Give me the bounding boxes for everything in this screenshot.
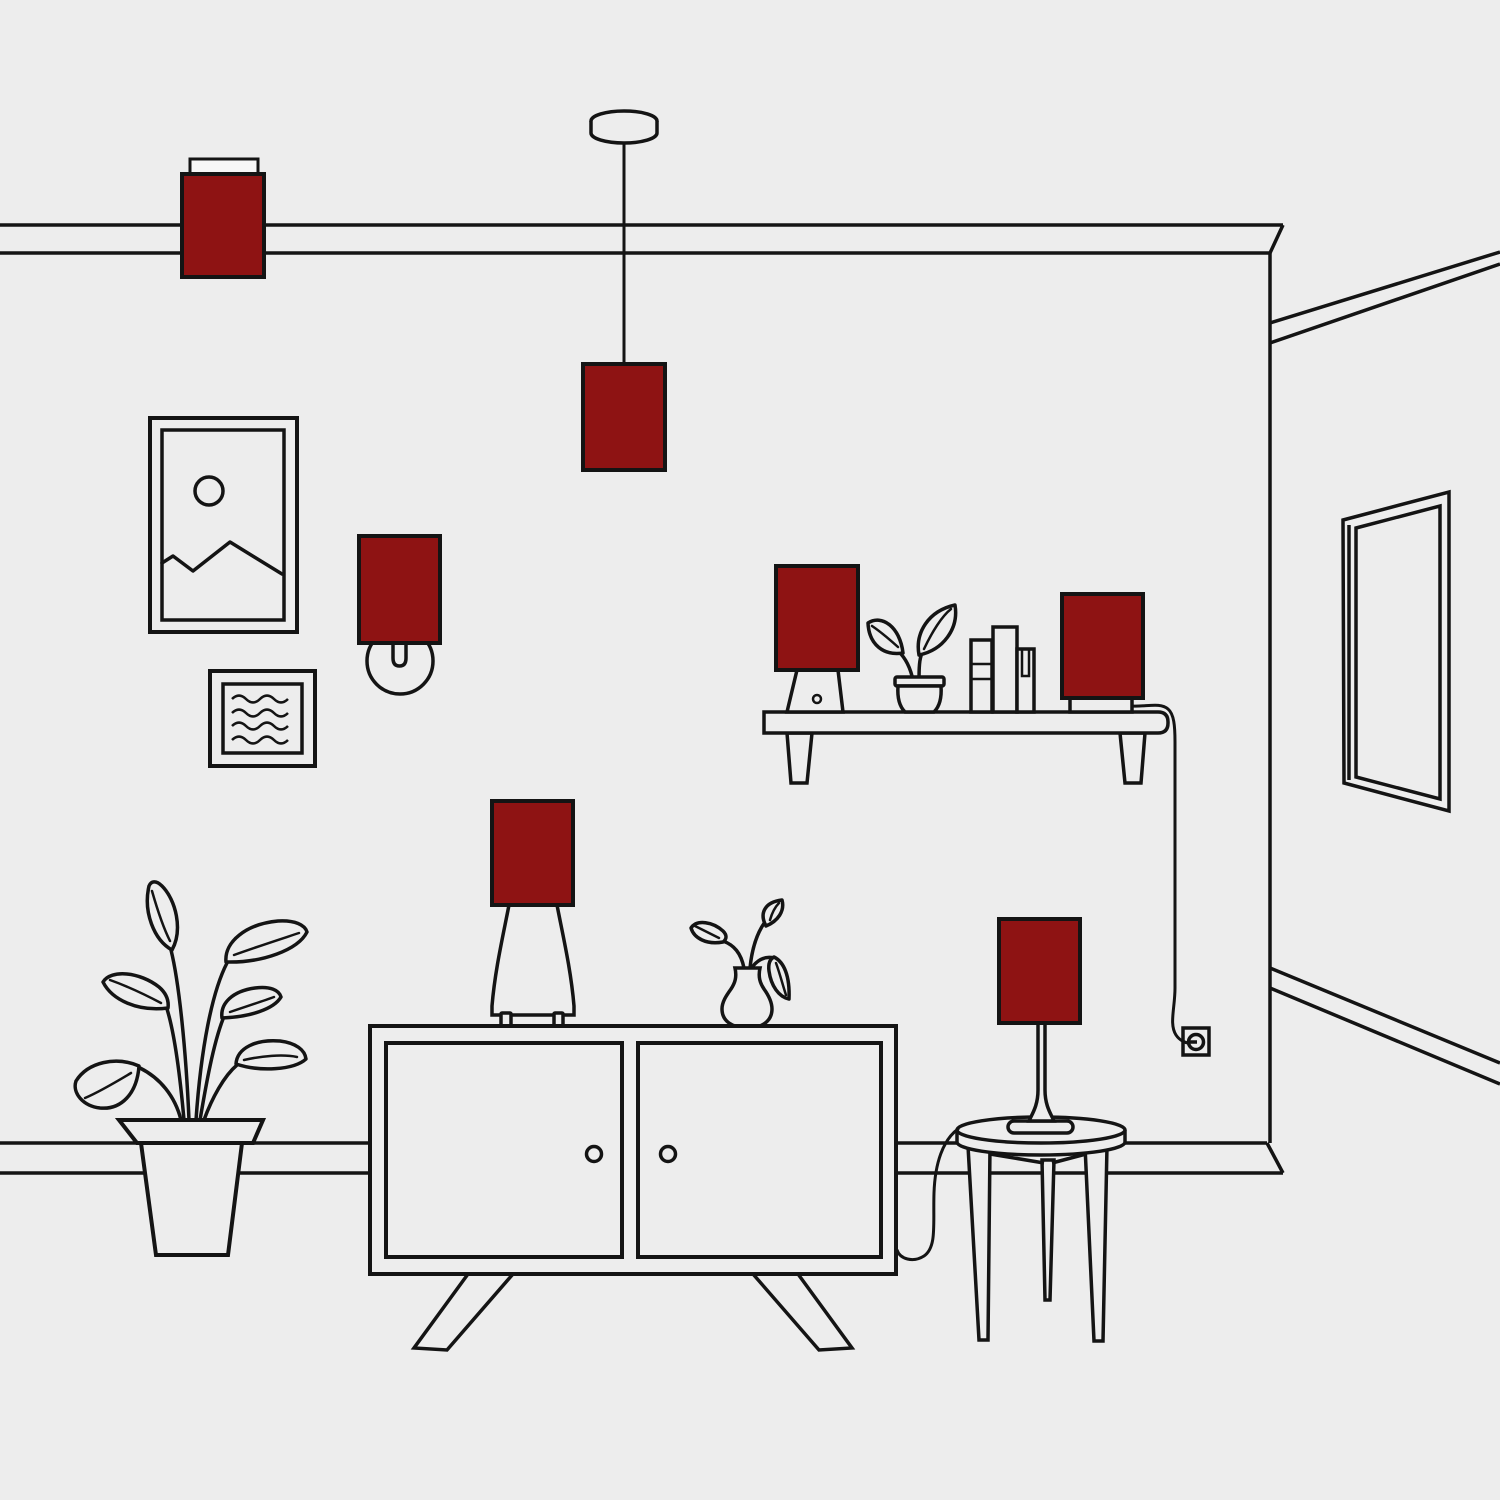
shelf-leg-right — [1120, 733, 1145, 783]
side-table-lamp — [999, 919, 1080, 1133]
lamp-plinth — [1070, 698, 1132, 712]
table-leg-right — [1085, 1146, 1107, 1341]
flower-vase — [691, 900, 789, 1028]
side-table — [957, 1117, 1125, 1341]
sconce-lampshade — [359, 536, 440, 643]
wall-sconce — [359, 536, 440, 694]
book — [993, 627, 1017, 712]
vase-body — [722, 968, 772, 1028]
living-room-illustration — [0, 0, 1500, 1500]
lamp-bell-base — [492, 905, 574, 1015]
lamp-stem — [1029, 1023, 1054, 1121]
scene-canvas — [0, 0, 1500, 1500]
shelf-lamp-right — [1062, 594, 1143, 712]
sideboard — [370, 1026, 896, 1350]
side-table-lampshade — [999, 919, 1080, 1023]
leaf — [226, 921, 307, 962]
plant-pot-rim — [119, 1120, 263, 1143]
leaf — [75, 1061, 139, 1108]
shelf-left-lampshade — [776, 566, 858, 670]
leaf — [222, 987, 281, 1018]
flush-lampshade — [182, 174, 264, 277]
floor-plant — [75, 882, 307, 1255]
table-lamp-cord — [897, 1129, 958, 1260]
side-ceiling-trim — [1270, 252, 1500, 323]
book — [1017, 649, 1034, 712]
shelf-right-lampshade — [1062, 594, 1143, 698]
wall-mirror — [1343, 492, 1449, 811]
sideboard-leg-right — [753, 1274, 852, 1350]
book-row — [971, 627, 1034, 712]
picture-frame-large — [150, 418, 297, 632]
table-leg-center — [1042, 1160, 1054, 1300]
table-leg-left — [968, 1146, 990, 1340]
side-baseboard — [1270, 968, 1500, 1063]
picture-frame-small — [210, 671, 315, 766]
sideboard-lampshade — [492, 801, 573, 905]
book — [971, 640, 992, 712]
sideboard-table-lamp — [492, 801, 574, 1026]
flush-ceiling-lamp — [182, 159, 264, 277]
shelf-plant — [868, 605, 956, 712]
pendant-lampshade — [583, 364, 665, 470]
ceiling-mount — [190, 159, 258, 174]
lamp-base-disc — [1008, 1121, 1073, 1133]
plant-pot — [141, 1143, 242, 1255]
sideboard-leg-left — [414, 1274, 513, 1350]
wall-shelf — [764, 712, 1168, 783]
shelf-leg-left — [787, 733, 812, 783]
shelf-board — [764, 712, 1168, 733]
plant-pot — [898, 686, 941, 712]
shelf-lamp-left — [776, 566, 858, 712]
lamp-base — [787, 670, 843, 712]
pendant-lamp — [583, 111, 665, 470]
